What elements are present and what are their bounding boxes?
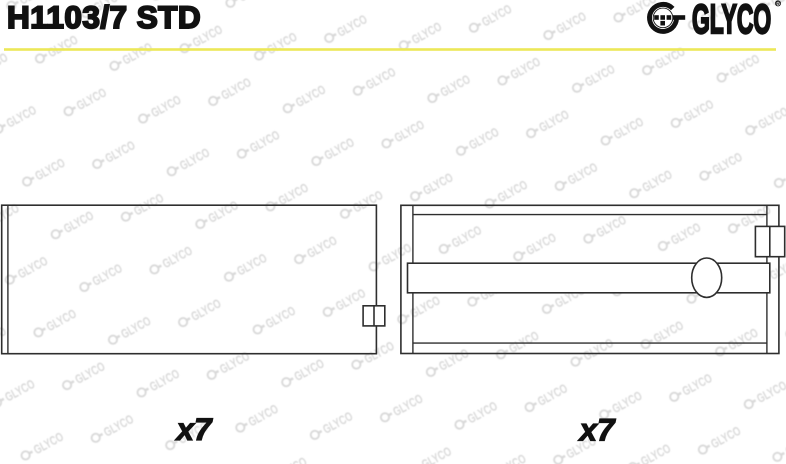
svg-text:R: R (776, 1, 780, 7)
svg-text:x7: x7 (578, 412, 617, 448)
svg-text:GLYCO: GLYCO (692, 0, 771, 42)
svg-text:x7: x7 (175, 411, 214, 447)
svg-text:H1103/7 STD: H1103/7 STD (7, 0, 201, 35)
